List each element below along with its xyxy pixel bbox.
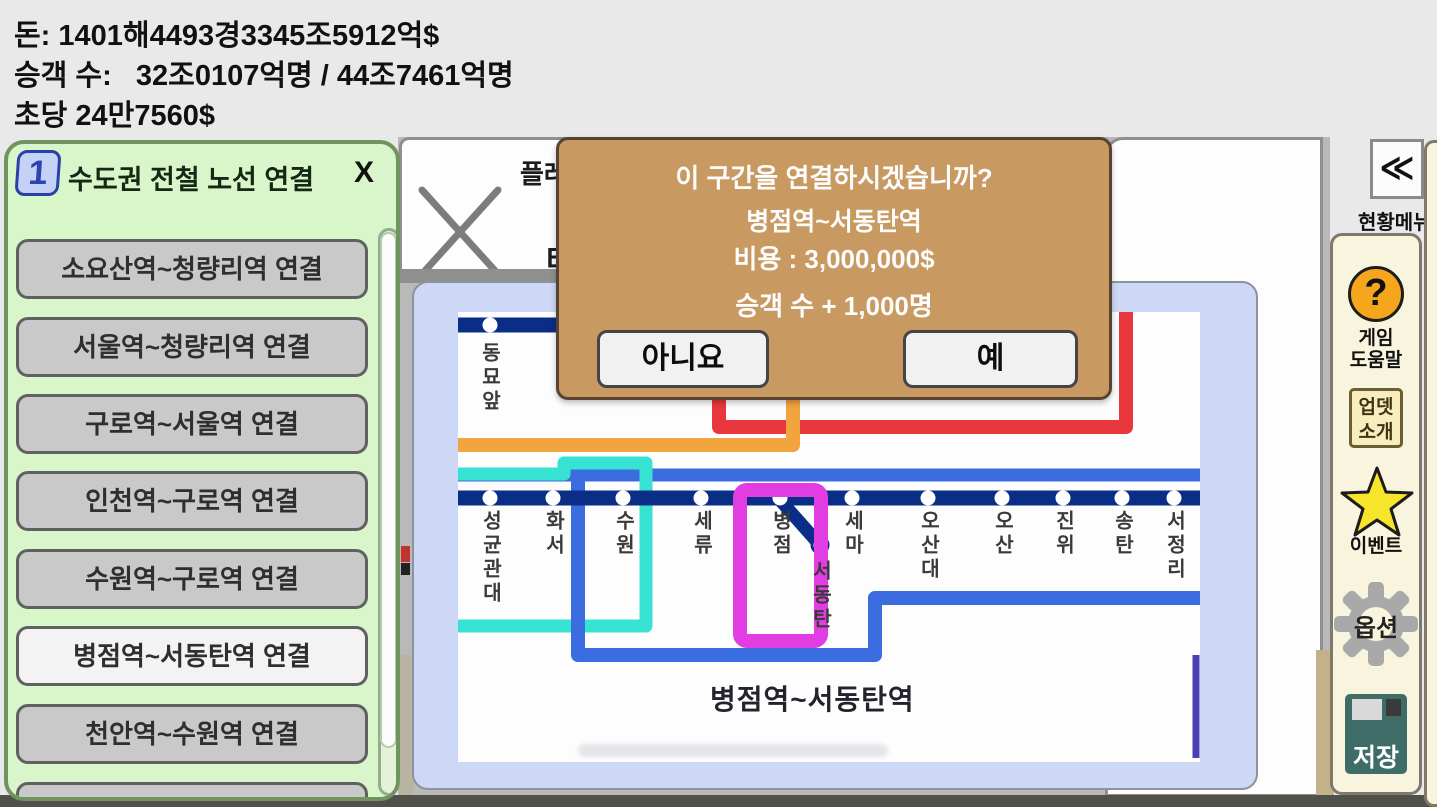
floppy-notch	[1386, 699, 1401, 716]
passenger-status: 승객 수: 32조0107억명 / 44조7461억명	[14, 52, 514, 94]
help-label-line1: 게임	[1333, 328, 1419, 350]
help-icon[interactable]: ?	[1348, 266, 1404, 322]
side-menu-edge	[1424, 140, 1437, 807]
collapse-menu-button[interactable]: ≪	[1370, 139, 1424, 199]
train-mark-dark	[401, 563, 410, 575]
connect-button-partial[interactable]	[16, 782, 368, 801]
track-cross-icon	[412, 182, 508, 278]
game-screen: 돈: 1401해4493경3345조5912억$ 승객 수: 32조0107억명…	[0, 0, 1437, 807]
update-label-line2: 소개	[1352, 420, 1400, 445]
station-label: 병점	[769, 510, 791, 558]
connect-confirm-dialog: 이 구간을 연결하시겠습니까? 병점역~서동탄역 비용 : 3,000,000$…	[556, 137, 1112, 400]
dialog-question: 이 구간을 연결하시겠습니까?	[559, 158, 1109, 195]
station-label: 수원	[612, 510, 634, 558]
options-gear-icon[interactable]: 옵션	[1333, 578, 1419, 670]
options-label: 옵션	[1333, 608, 1419, 643]
connect-button-guro-seoul[interactable]: 구로역~서울역 연결	[16, 394, 368, 454]
sidebar-menu: ? 게임 도움말 업뎃 소개 이벤트 옵션	[1330, 233, 1422, 795]
connect-button-seoul-cheongnyangni[interactable]: 서울역~청량리역 연결	[16, 317, 368, 377]
station-label: 진위	[1052, 510, 1074, 558]
connect-button-incheon-guro[interactable]: 인천역~구로역 연결	[16, 471, 368, 531]
station-label: 성균관대	[479, 510, 501, 606]
map-section-label: 병점역~서동탄역	[710, 678, 915, 718]
station-label: 서정리	[1163, 510, 1185, 582]
save-floppy-icon[interactable]: 저장	[1345, 694, 1407, 774]
dialog-section: 병점역~서동탄역	[559, 202, 1109, 238]
station-label: 세류	[690, 510, 712, 558]
income-per-second-status: 초당 24만7560$	[14, 92, 215, 134]
help-label-line2: 도움말	[1333, 350, 1419, 372]
station-label: 세마	[841, 510, 863, 558]
station-label: 오산	[991, 510, 1013, 558]
scrollbar-thumb[interactable]	[380, 232, 397, 748]
dialog-passenger-bonus: 승객 수 + 1,000명	[559, 286, 1109, 323]
station-label-dongmyoap: 동묘앞	[478, 342, 500, 414]
floppy-shutter	[1352, 699, 1382, 720]
faded-caption	[578, 744, 888, 757]
line-connection-panel: 1 수도권 전철 노선 연결 X 소요산역~청량리역 연결 서울역~청량리역 연…	[4, 140, 400, 801]
connect-button-byeongjeom-seodongtan[interactable]: 병점역~서동탄역 연결	[16, 626, 368, 686]
connect-button-suwon-guro[interactable]: 수원역~구로역 연결	[16, 549, 368, 609]
event-star-icon[interactable]	[1339, 466, 1415, 540]
station-label: 오산대	[917, 510, 939, 582]
event-label: 이벤트	[1333, 536, 1419, 558]
no-button[interactable]: 아니요	[597, 330, 769, 388]
train-mark-red	[401, 546, 410, 562]
station-label: 화서	[542, 510, 564, 558]
connect-button-soyosan-cheongnyangni[interactable]: 소요산역~청량리역 연결	[16, 239, 368, 299]
panel-title: 수도권 전철 노선 연결	[68, 158, 314, 197]
update-notes-icon[interactable]: 업뎃 소개	[1349, 388, 1403, 448]
station-label: 송탄	[1111, 510, 1133, 558]
close-icon[interactable]: X	[354, 156, 374, 190]
station-label-seodongtan: 서동탄	[809, 560, 831, 632]
yes-button[interactable]: 예	[903, 330, 1078, 388]
connect-button-cheonan-suwon[interactable]: 천안역~수원역 연결	[16, 704, 368, 764]
dialog-cost: 비용 : 3,000,000$	[559, 239, 1109, 276]
money-status: 돈: 1401해4493경3345조5912억$	[14, 12, 439, 54]
update-label-line1: 업뎃	[1352, 395, 1400, 420]
save-label: 저장	[1345, 738, 1407, 774]
panel-number-badge: 1	[14, 150, 61, 196]
